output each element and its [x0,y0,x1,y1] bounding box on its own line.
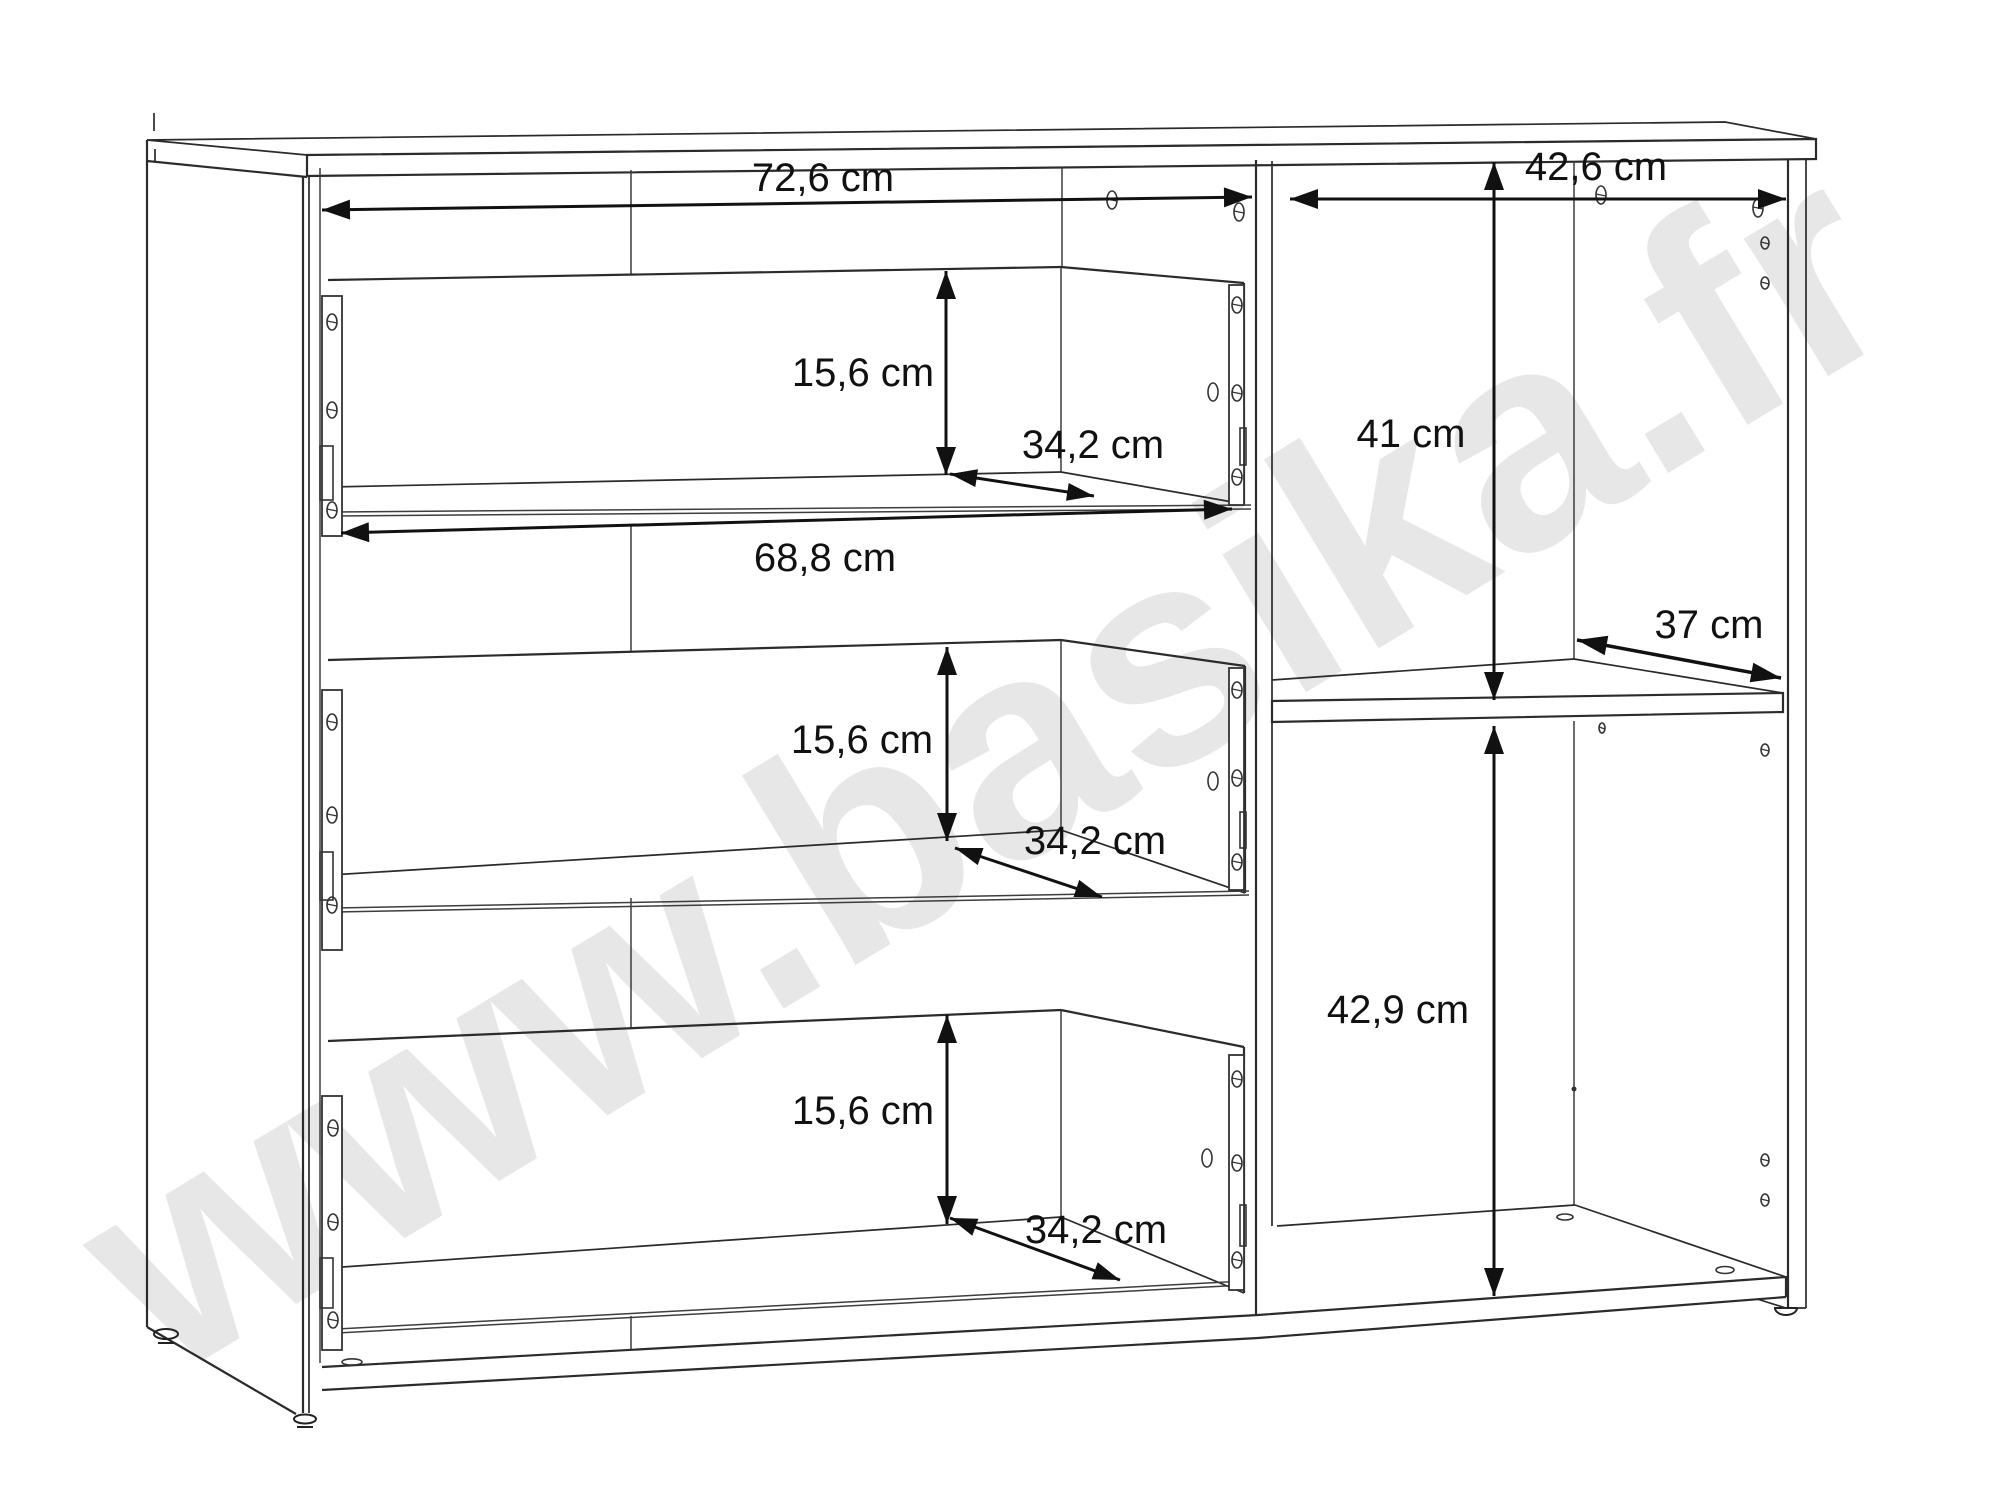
svg-text:68,8 cm: 68,8 cm [754,536,896,580]
svg-text:42,6 cm: 42,6 cm [1525,145,1667,189]
svg-text:37 cm: 37 cm [1655,603,1764,647]
svg-text:72,6 cm: 72,6 cm [752,156,894,200]
svg-text:15,6 cm: 15,6 cm [791,718,933,762]
svg-text:42,9 cm: 42,9 cm [1327,988,1469,1032]
svg-text:34,2 cm: 34,2 cm [1025,1208,1167,1252]
svg-text:34,2 cm: 34,2 cm [1022,423,1164,467]
svg-text:34,2 cm: 34,2 cm [1024,819,1166,863]
svg-text:41 cm: 41 cm [1357,412,1466,456]
svg-text:15,6 cm: 15,6 cm [792,351,934,395]
svg-text:15,6 cm: 15,6 cm [792,1089,934,1133]
